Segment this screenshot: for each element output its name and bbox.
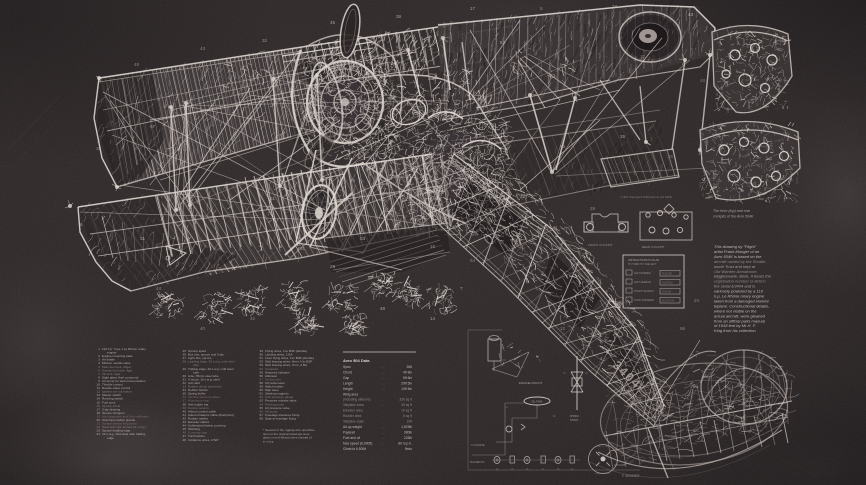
svg-text:STICK FORWARD: STICK FORWARD [634, 299, 654, 302]
svg-text:Climb to 6,500ft: Climb to 6,500ft [343, 447, 366, 451]
svg-text:38: 38 [96, 146, 102, 151]
svg-text:28: 28 [183, 360, 187, 364]
svg-text:4: 4 [600, 356, 603, 361]
svg-text:TO TURN TO THE LEFT: TO TURN TO THE LEFT [628, 262, 657, 266]
svg-text:Chord: Chord [343, 370, 352, 374]
svg-text:24: 24 [97, 432, 101, 436]
svg-text:LEFT AILERON: LEFT AILERON [634, 281, 651, 284]
svg-text:11: 11 [630, 386, 635, 391]
svg-text:10 sq ft: 10 sq ft [401, 409, 412, 413]
svg-text:.....: ..... [381, 403, 385, 407]
svg-text:6: 6 [80, 222, 83, 227]
svg-text:edge: edge [107, 436, 114, 440]
svg-text:18: 18 [430, 244, 436, 249]
svg-text:Length: Length [343, 381, 353, 385]
svg-text:12: 12 [560, 326, 566, 331]
svg-text:RUDDER: RUDDER [662, 273, 673, 276]
svg-text:Payload: Payload [343, 430, 355, 434]
svg-text:42: 42 [250, 316, 256, 321]
svg-text:5ft 6in: 5ft 6in [403, 376, 412, 380]
svg-text:King from his collection: King from his collection [714, 328, 756, 333]
svg-text:29ft 5in: 29ft 5in [401, 381, 412, 385]
svg-text:INSTRUCTIONS TO PLAN: INSTRUCTIONS TO PLAN [628, 258, 659, 262]
svg-text:PAIR TO TAKE: PAIR TO TAKE [596, 445, 610, 448]
svg-text:24: 24 [694, 298, 700, 303]
svg-text:.....: ..... [381, 381, 385, 385]
svg-text:1: 1 [98, 347, 100, 351]
svg-text:Avro 504 Data: Avro 504 Data [343, 358, 370, 363]
svg-text:MAGNETOS: MAGNETOS [470, 461, 485, 464]
svg-text:.....: ..... [381, 370, 385, 374]
svg-text:4: 4 [490, 154, 493, 159]
svg-text:.....: ..... [381, 376, 385, 380]
svg-text:14: 14 [430, 316, 436, 321]
svg-text:FRONT COCKPIT: FRONT COCKPIT [588, 243, 613, 247]
svg-text:36ft: 36ft [407, 365, 413, 369]
svg-text:in s.w.g.: in s.w.g. [263, 439, 274, 443]
svg-text:F. MUNGER: F. MUNGER [622, 474, 640, 478]
svg-text:ENGINE: ENGINE [662, 291, 672, 294]
svg-text:TO ENGINE: TO ENGINE [471, 444, 485, 447]
svg-text:© Iliffe Transport Publication: © Iliffe Transport Publications Ltd 1968 [620, 195, 672, 199]
svg-text:225lb: 225lb [404, 436, 412, 440]
svg-text:6 sq ft: 6 sq ft [403, 414, 412, 418]
svg-text:1,829lb: 1,829lb [401, 425, 412, 429]
svg-text:Tailplane area: Tailplane area [343, 403, 364, 407]
svg-text:44: 44 [156, 286, 162, 291]
svg-text:32: 32 [520, 194, 526, 199]
svg-text:67: 67 [150, 124, 156, 129]
svg-text:.....: ..... [381, 425, 385, 429]
svg-text:Height: Height [343, 387, 353, 391]
svg-text:.....: ..... [381, 436, 385, 440]
svg-text:(including ailerons): (including ailerons) [343, 398, 371, 402]
svg-text:53: 53 [360, 236, 366, 241]
svg-text:51: 51 [300, 246, 306, 251]
svg-text:68: 68 [420, 174, 426, 179]
svg-text:Wing area: Wing area [343, 392, 358, 396]
svg-text:25: 25 [620, 134, 626, 139]
svg-text:52: 52 [500, 40, 506, 45]
svg-text:.....: ..... [381, 414, 385, 418]
svg-text:48: 48 [380, 306, 386, 311]
svg-text:THROTTLE BACK: THROTTLE BACK [634, 290, 654, 293]
svg-text:37: 37 [238, 92, 244, 97]
svg-text:55: 55 [560, 144, 566, 149]
svg-text:ENGINE MOUNT: ENGINE MOUNT [519, 381, 543, 385]
svg-text:40: 40 [200, 326, 206, 331]
svg-text:6: 6 [540, 6, 543, 11]
svg-text:All-up weight: All-up weight [343, 425, 362, 429]
svg-text:REAR COCKPIT: REAR COCKPIT [642, 245, 665, 249]
svg-text:4ft 9in: 4ft 9in [403, 370, 412, 374]
svg-text:56: 56 [680, 326, 686, 331]
svg-text:23: 23 [420, 58, 426, 63]
svg-text:7: 7 [460, 286, 463, 291]
svg-text:Max speed (6,000ft): Max speed (6,000ft) [343, 441, 372, 445]
svg-text:330 sq ft: 330 sq ft [399, 398, 412, 402]
svg-text:25: 25 [668, 154, 674, 159]
svg-text:31: 31 [140, 236, 146, 241]
svg-text:STRUT: STRUT [570, 419, 579, 422]
svg-text:30 sq ft: 30 sq ft [401, 403, 412, 407]
svg-text:80 m.p.h.: 80 m.p.h. [398, 441, 412, 445]
svg-text:The front (top) and rear: The front (top) and rear [713, 209, 751, 213]
svg-text:LEFT RUDDER: LEFT RUDDER [634, 272, 651, 275]
svg-text:.....: ..... [381, 441, 385, 445]
svg-text:.....: ..... [381, 365, 385, 369]
svg-text:10ft 5in: 10ft 5in [401, 387, 412, 391]
svg-text:Incidence wires, 2 BA*: Incidence wires, 2 BA* [188, 438, 220, 442]
svg-text:68: 68 [260, 416, 264, 420]
svg-text:.....: ..... [381, 398, 385, 402]
svg-text:9min: 9min [405, 447, 412, 451]
svg-text:24: 24 [612, 4, 618, 9]
svg-text:380lb: 380lb [404, 430, 412, 434]
svg-text:8: 8 [520, 296, 523, 301]
svg-text:.....: ..... [381, 420, 385, 424]
svg-text:.....: ..... [381, 447, 385, 451]
svg-text:cockpits of the Avro 504K: cockpits of the Avro 504K [713, 215, 754, 219]
svg-text:48: 48 [700, 78, 706, 83]
svg-text:29: 29 [183, 367, 187, 371]
svg-text:29: 29 [590, 206, 596, 211]
svg-text:32: 32 [262, 38, 268, 43]
svg-text:Rudder area: Rudder area [343, 414, 361, 418]
svg-text:28: 28 [330, 264, 336, 269]
svg-text:Elevator area: Elevator area [343, 409, 363, 413]
svg-text:Spar-to-fuselage fixing: Spar-to-fuselage fixing [265, 416, 296, 420]
svg-text:2: 2 [560, 64, 563, 69]
svg-text:17: 17 [470, 6, 476, 11]
svg-text:38: 38 [360, 54, 366, 59]
svg-text:Span: Span [343, 365, 351, 369]
svg-text:50: 50 [210, 218, 216, 223]
svg-text:45: 45 [330, 20, 336, 25]
svg-text:Gap: Gap [343, 376, 349, 380]
svg-text:25: 25 [350, 178, 356, 183]
svg-text:Fuel and oil: Fuel and oil [343, 436, 360, 440]
svg-text:OIL TANK: OIL TANK [531, 401, 542, 404]
svg-text:Tailplane span: Tailplane span [343, 420, 364, 424]
svg-text:12: 12 [640, 54, 646, 59]
svg-text:ELEVATOR: ELEVATOR [662, 300, 675, 303]
svg-text:MAIN TO BRING: MAIN TO BRING [595, 472, 611, 475]
svg-text:.....: ..... [381, 430, 385, 434]
svg-text:.....: ..... [381, 409, 385, 413]
svg-text:39: 39 [396, 14, 402, 19]
svg-text:SHOCK: SHOCK [570, 415, 579, 418]
svg-text:.....: ..... [381, 387, 385, 391]
svg-text:43: 43 [200, 46, 206, 51]
svg-text:43: 43 [688, 12, 694, 17]
svg-text:54: 54 [470, 258, 476, 263]
svg-text:51: 51 [270, 196, 276, 201]
svg-text:49: 49 [134, 62, 140, 67]
svg-text:AILERON: AILERON [662, 282, 673, 285]
svg-text:48: 48 [183, 438, 187, 442]
svg-text:10ft: 10ft [407, 420, 413, 424]
